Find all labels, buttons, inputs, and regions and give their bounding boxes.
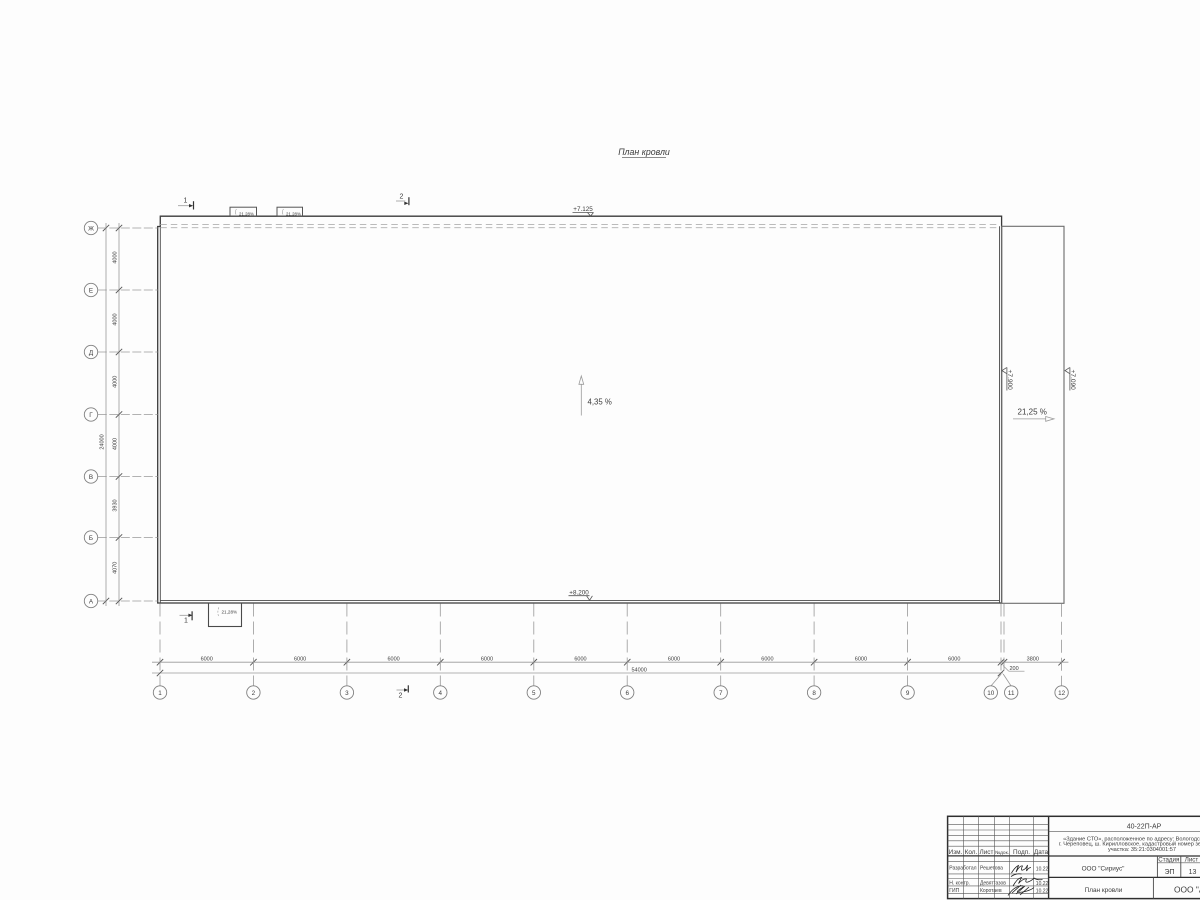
svg-text:6000: 6000 [855,656,867,662]
svg-text:1: 1 [184,618,188,625]
svg-text:Д: Д [89,349,94,356]
svg-text:6000: 6000 [294,656,306,662]
svg-text:1: 1 [158,690,162,697]
svg-text:1: 1 [184,198,188,205]
svg-text:21,28%: 21,28% [286,211,301,216]
svg-text:10: 10 [987,690,995,697]
svg-text:ООО "Сириус": ООО "Сириус" [1082,866,1125,873]
svg-text:2: 2 [400,194,404,201]
svg-text:ГИП: ГИП [949,888,959,894]
svg-text:2: 2 [399,692,403,699]
svg-text:5: 5 [532,690,536,697]
svg-text:6000: 6000 [948,656,960,662]
svg-text:6000: 6000 [761,656,773,662]
svg-text:Стадия: Стадия [1158,857,1179,864]
svg-text:24000: 24000 [99,434,105,449]
svg-text:2: 2 [252,690,256,697]
svg-text:54000: 54000 [632,667,647,673]
svg-text:21,28%: 21,28% [239,211,254,216]
svg-text:6000: 6000 [201,656,213,662]
svg-text:6000: 6000 [481,656,493,662]
svg-text:Разработал: Разработал [949,866,976,872]
svg-text:+7.090: +7.090 [1069,370,1076,391]
svg-text:10.22: 10.22 [1036,866,1049,872]
svg-text:Е: Е [89,287,93,294]
svg-text:3: 3 [345,690,349,697]
svg-text:Лист: Лист [980,849,994,856]
svg-text:4000: 4000 [112,313,118,325]
svg-text:4,35 %: 4,35 % [588,398,612,407]
svg-text:6000: 6000 [574,656,586,662]
svg-text:4000: 4000 [112,376,118,388]
svg-text:4070: 4070 [112,562,118,574]
svg-text:4: 4 [439,690,443,697]
svg-text:Подп.: Подп. [1013,849,1030,856]
svg-text:11: 11 [1008,690,1015,697]
svg-text:+7.900: +7.900 [1006,370,1013,391]
svg-text:3930: 3930 [112,499,118,511]
svg-text:Решетова: Решетова [980,866,1003,872]
svg-text:План кровли: План кровли [1085,887,1123,894]
svg-text:4000: 4000 [112,438,118,450]
svg-text:+7.125: +7.125 [573,206,593,213]
svg-text:6000: 6000 [387,656,399,662]
svg-text:Г: Г [89,412,93,419]
svg-text:участка: 35:21:0304001:57: участка: 35:21:0304001:57 [1108,847,1176,853]
svg-text:7: 7 [719,690,723,697]
svg-text:9: 9 [906,690,910,697]
svg-text:Коротаев: Коротаев [980,888,1002,894]
svg-text:Изм.: Изм. [949,849,963,856]
svg-text:12: 12 [1058,690,1066,697]
svg-text:Б: Б [89,535,93,542]
svg-text:3800: 3800 [1027,656,1039,662]
svg-text:№док.: №док. [995,850,1009,856]
svg-text:Девятгазов: Девятгазов [980,880,1006,886]
svg-text:ЭП: ЭП [1164,869,1174,876]
svg-text:13: 13 [1189,869,1197,876]
svg-text:10.22: 10.22 [1036,889,1049,895]
svg-text:21,25 %: 21,25 % [1018,407,1047,416]
svg-text:40-22П-АР: 40-22П-АР [1127,824,1162,831]
svg-text:В: В [89,474,93,481]
svg-text:6: 6 [625,690,629,697]
svg-text:План кровли: План кровли [618,147,670,157]
svg-text:Дата: Дата [1034,849,1049,856]
svg-text:Кол.: Кол. [965,849,978,856]
svg-text:10.22: 10.22 [1036,881,1049,887]
svg-text:200: 200 [1010,666,1019,672]
svg-text:Н. контр.: Н. контр. [949,880,970,886]
svg-text:4000: 4000 [112,251,118,263]
svg-text:Ж: Ж [88,225,94,232]
svg-text:Лист: Лист [1185,857,1199,864]
svg-text:+8.200: +8.200 [569,589,589,596]
svg-text:6000: 6000 [668,656,680,662]
svg-text:ООО "Ар: ООО "Ар [1174,884,1200,894]
svg-text:8: 8 [812,690,816,697]
svg-text:21,28%: 21,28% [222,610,238,615]
